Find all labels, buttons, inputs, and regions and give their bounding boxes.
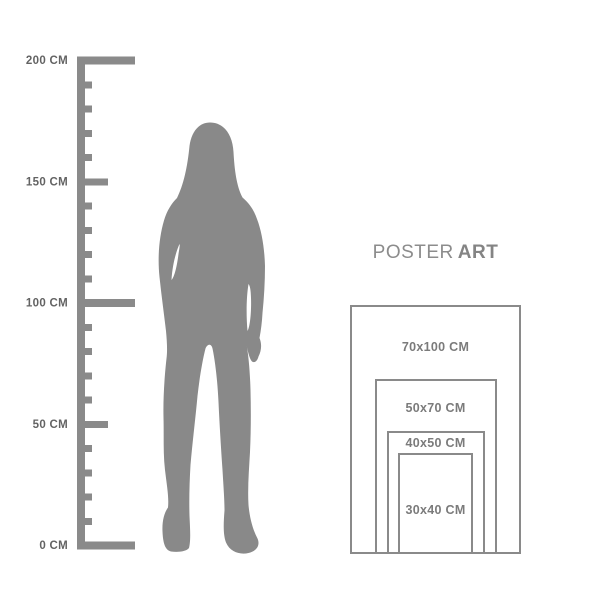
ruler-tick-medium (77, 178, 108, 185)
ruler-tick-major (77, 57, 135, 65)
poster-size-label-50x70: 50x70 CM (350, 401, 521, 415)
poster-title-bold: ART (458, 242, 499, 263)
ruler-tick-minor (77, 469, 92, 476)
ruler-tick-major (77, 299, 135, 307)
ruler-label-200cm: 200 CM (26, 55, 68, 67)
ruler-tick-minor (77, 154, 92, 161)
ruler-tick-minor (77, 106, 92, 113)
ruler-tick-minor (77, 372, 92, 379)
standing-woman-silhouette (159, 123, 265, 554)
ruler-tick-minor (77, 518, 92, 525)
height-ruler: 200 CM 150 CM 100 CM 50 CM 0 CM (26, 55, 135, 552)
ruler-tick-medium (77, 421, 108, 428)
poster-size-label-40x50: 40x50 CM (350, 436, 521, 450)
ruler-tick-minor (77, 348, 92, 355)
ruler-tick-minor (77, 445, 92, 452)
poster-title-regular: POSTER (373, 242, 454, 263)
poster-title: POSTERART (350, 242, 521, 264)
ruler-tick-major (77, 542, 135, 550)
ruler-tick-minor (77, 227, 92, 234)
ruler-label-100cm: 100 CM (26, 298, 68, 310)
poster-size-label-70x100: 70x100 CM (350, 340, 521, 354)
ruler-label-50cm: 50 CM (33, 419, 68, 431)
ruler-tick-minor (77, 130, 92, 137)
poster-size-guide-infographic: 200 CM 150 CM 100 CM 50 CM 0 CM POSTERAR… (0, 0, 600, 600)
ruler-tick-minor (77, 81, 92, 88)
ruler-tick-minor (77, 324, 92, 331)
poster-size-label-30x40: 30x40 CM (350, 503, 521, 517)
ruler-tick-minor (77, 494, 92, 501)
ruler-tick-minor (77, 397, 92, 404)
ruler-tick-minor (77, 251, 92, 258)
ruler-label-150cm: 150 CM (26, 176, 68, 188)
poster-size-stack: 70x100 CM 50x70 CM 40x50 CM 30x40 CM (350, 305, 521, 554)
ruler-label-0cm: 0 CM (39, 540, 68, 552)
ruler-tick-minor (77, 275, 92, 282)
ruler-tick-minor (77, 203, 92, 210)
